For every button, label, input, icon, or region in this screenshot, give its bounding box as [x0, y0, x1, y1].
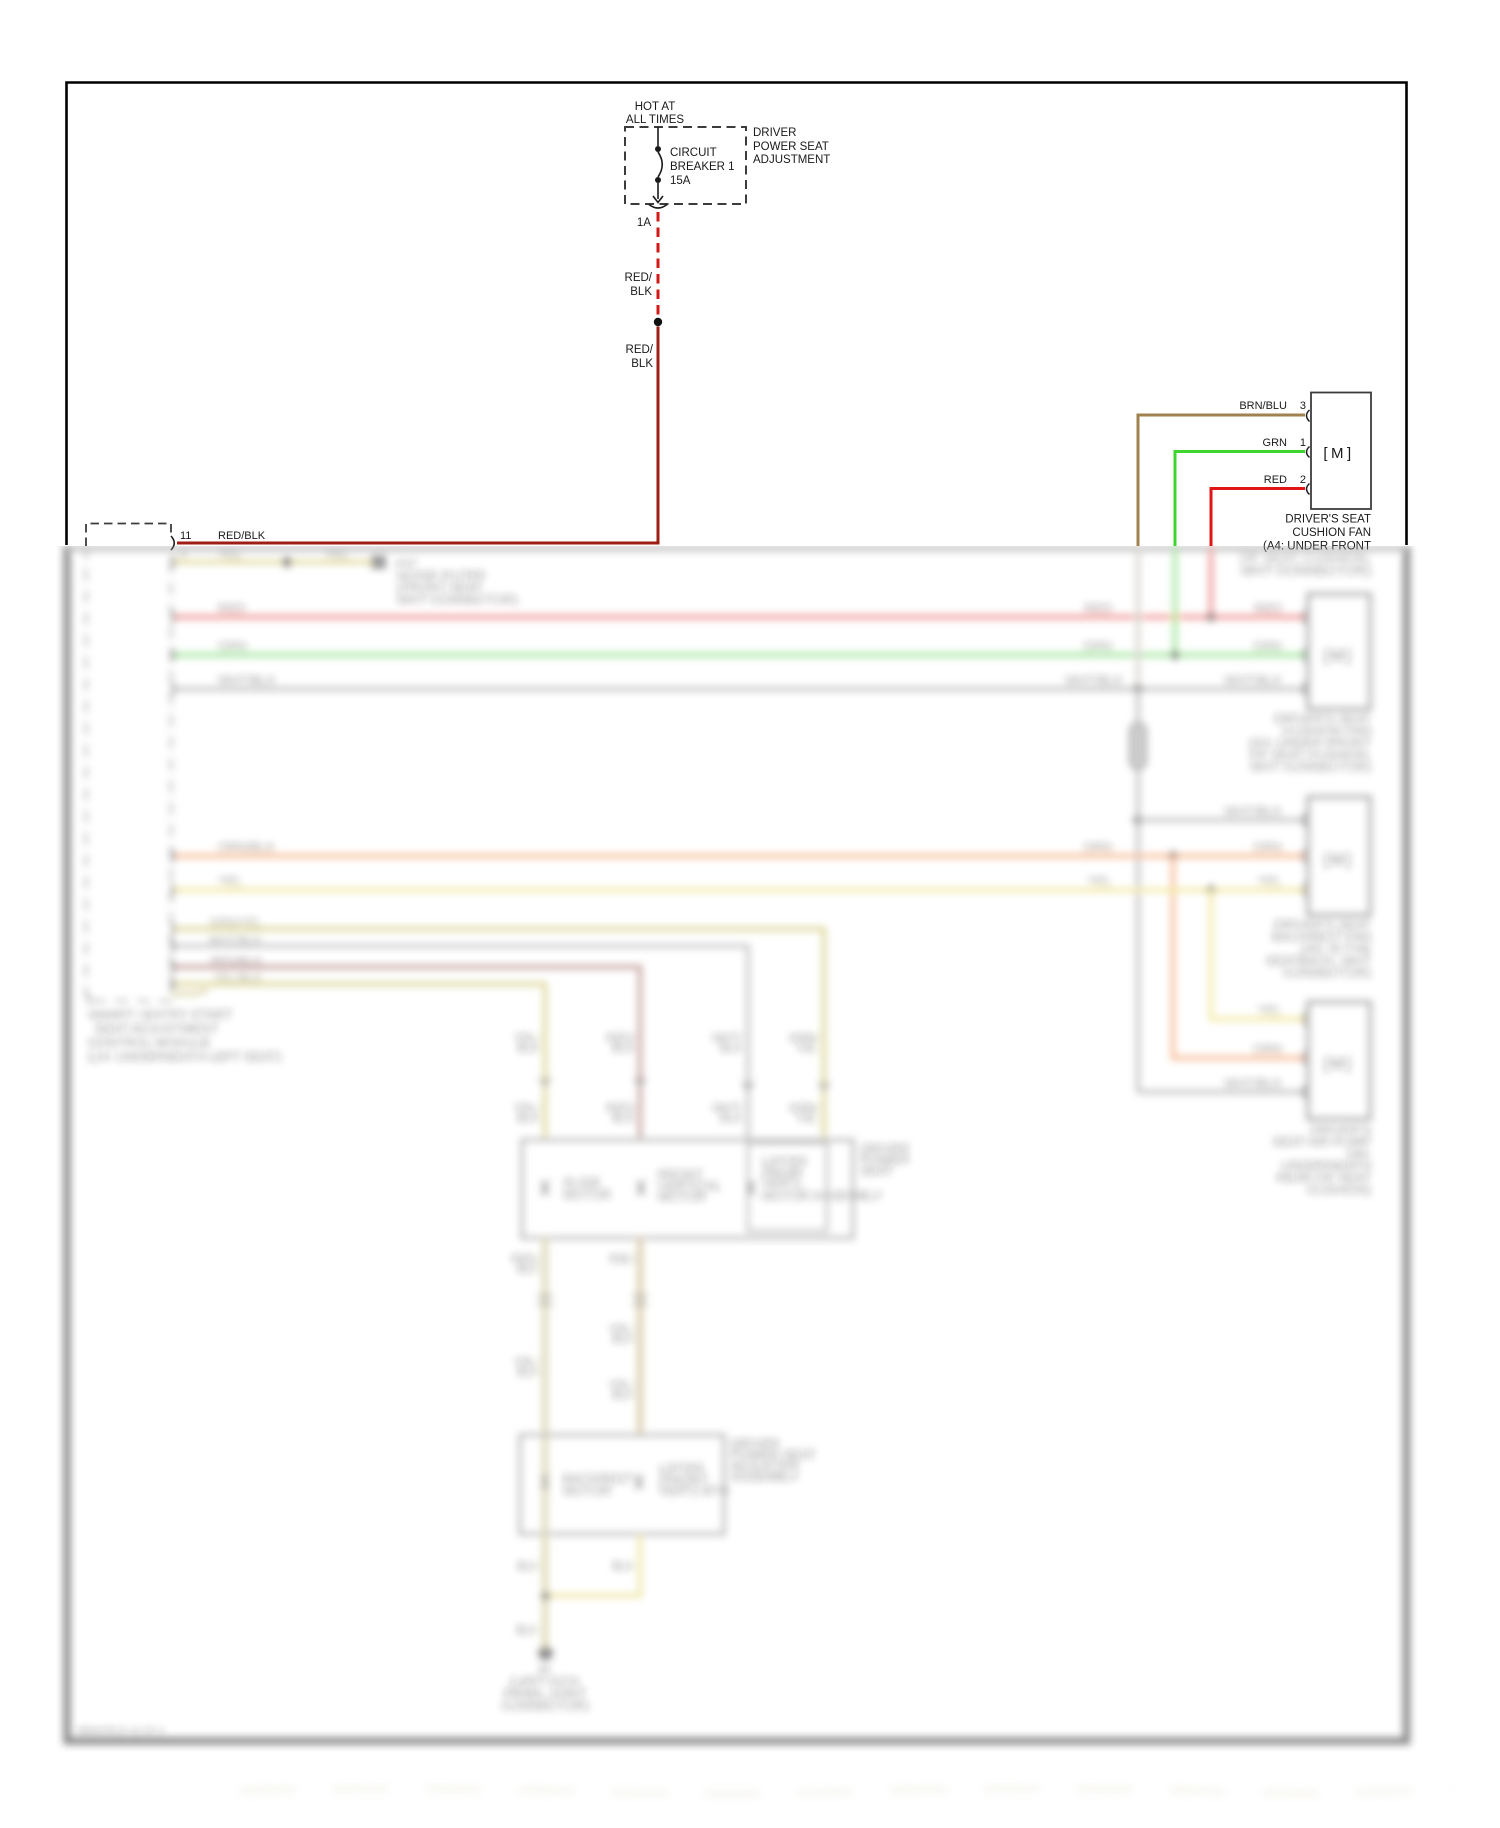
svg-text:ADJUSTMENT: ADJUSTMENT	[753, 154, 830, 166]
svg-text:YEL: YEL	[1257, 1003, 1282, 1018]
svg-text:SEAT: SEAT	[860, 1163, 893, 1178]
svg-text:MBWORLD 12 OF 4: MBWORLD 12 OF 4	[77, 1726, 164, 1737]
svg-text:BLK: BLK	[517, 1559, 540, 1573]
svg-text:[M]: [M]	[1324, 1054, 1352, 1073]
svg-text:BLK: BLK	[517, 1111, 540, 1125]
svg-text:WHT/BLK: WHT/BLK	[1224, 804, 1282, 819]
svg-text:CONNECTOR): CONNECTOR)	[501, 1698, 589, 1713]
svg-text:WHT CONNECTOR): WHT CONNECTOR)	[397, 592, 518, 607]
svg-text:BLK: BLK	[517, 1262, 540, 1276]
svg-text:YEL: YEL	[796, 1041, 819, 1055]
svg-text:DRIVER: DRIVER	[753, 127, 796, 139]
svg-text:CUSHION): CUSHION)	[1307, 1182, 1371, 1197]
svg-text:BLK: BLK	[612, 1111, 635, 1125]
svg-text:GRN: GRN	[1263, 437, 1288, 449]
svg-text:BLK: BLK	[612, 1559, 635, 1573]
svg-text:1: 1	[1300, 437, 1306, 449]
svg-text:SMART / ENTRY START: SMART / ENTRY START	[88, 1007, 233, 1022]
svg-text:CONTROL MODULE: CONTROL MODULE	[88, 1035, 211, 1050]
svg-text:WHT/BLK: WHT/BLK	[1224, 1076, 1282, 1091]
svg-text:RED/BLK: RED/BLK	[218, 530, 266, 542]
svg-text:GRN: GRN	[1083, 639, 1112, 654]
svg-text:BRN/BLU: BRN/BLU	[1239, 400, 1287, 412]
svg-text:BLK: BLK	[612, 1041, 635, 1055]
svg-text:CIRCUIT: CIRCUIT	[670, 147, 717, 159]
svg-text:MOTOR: MOTOR	[563, 1483, 611, 1498]
svg-text:RED/BLK: RED/BLK	[211, 954, 262, 968]
svg-text:[M]: [M]	[1324, 850, 1352, 869]
svg-text:BLK: BLK	[612, 1388, 635, 1402]
svg-text:ORN: ORN	[1253, 1042, 1282, 1057]
svg-text:YEL: YEL	[218, 547, 243, 562]
svg-text:WHT/BLK: WHT/BLK	[209, 933, 262, 947]
svg-text:1A: 1A	[637, 217, 651, 229]
svg-text:RED: RED	[610, 1252, 636, 1266]
svg-text:ORN: ORN	[1253, 840, 1282, 855]
svg-text:MOTOR ASSEMBLY: MOTOR ASSEMBLY	[762, 1188, 882, 1203]
svg-text:ORN/BLK: ORN/BLK	[218, 840, 275, 855]
svg-text:WHT CONNECTOR): WHT CONNECTOR)	[1241, 562, 1371, 578]
svg-text:YEL: YEL	[1087, 874, 1112, 889]
svg-text:[M]: [M]	[1324, 646, 1352, 665]
svg-text:CONNECTOR): CONNECTOR)	[1283, 965, 1371, 980]
svg-text:SEAT ADJUSTMENT: SEAT ADJUSTMENT	[95, 1021, 218, 1036]
svg-text:BREAKER 1: BREAKER 1	[670, 161, 735, 173]
svg-text:RED: RED	[218, 601, 245, 616]
svg-text:RED/: RED/	[626, 344, 654, 356]
svg-text:CUSHION FAN: CUSHION FAN	[1292, 527, 1371, 539]
svg-text:BLK: BLK	[517, 1365, 540, 1379]
svg-text:2: 2	[1300, 474, 1306, 486]
svg-text:WHT/BLK: WHT/BLK	[1065, 673, 1123, 688]
svg-text:MOTOR: MOTOR	[563, 1187, 611, 1202]
svg-text:GRN: GRN	[218, 639, 247, 654]
svg-text:ORN: ORN	[1083, 840, 1112, 855]
svg-text:DRIVER'S SEAT: DRIVER'S SEAT	[1285, 514, 1371, 526]
svg-text:4: 4	[180, 549, 187, 561]
svg-text:YEL/BLK: YEL/BLK	[213, 971, 262, 985]
svg-text:GRN/YEL: GRN/YEL	[209, 916, 262, 930]
svg-text:ASSEMBLY: ASSEMBLY	[730, 1469, 799, 1484]
svg-text:BLK: BLK	[630, 286, 652, 298]
svg-text:YEL: YEL	[796, 1111, 819, 1125]
svg-text:YEL: YEL	[325, 547, 350, 562]
svg-text:(LH: UNDERNEATH LEFT SEAT): (LH: UNDERNEATH LEFT SEAT)	[88, 1049, 282, 1064]
svg-text:RED: RED	[1255, 601, 1282, 616]
svg-text:BLK: BLK	[631, 358, 653, 370]
svg-text:RED: RED	[1264, 474, 1287, 486]
svg-text:VERT) MTR: VERT) MTR	[659, 1483, 730, 1498]
svg-text:RED: RED	[1085, 601, 1112, 616]
svg-text:WHT CONNECTOR): WHT CONNECTOR)	[1250, 759, 1371, 774]
svg-text:15A: 15A	[670, 175, 691, 187]
svg-text:BLK: BLK	[517, 1041, 540, 1055]
svg-text:GRN: GRN	[1253, 639, 1282, 654]
svg-text:BLK: BLK	[720, 1111, 743, 1125]
svg-text:BLK: BLK	[720, 1041, 743, 1055]
svg-text:[M]: [M]	[1323, 445, 1354, 462]
svg-text:11: 11	[180, 530, 191, 542]
svg-text:WHT/BLK: WHT/BLK	[218, 673, 276, 688]
svg-text:BLK: BLK	[516, 1623, 539, 1637]
svg-text:YEL: YEL	[1257, 874, 1282, 889]
svg-text:HOT AT: HOT AT	[635, 101, 675, 113]
svg-text:ALL TIMES: ALL TIMES	[626, 114, 684, 126]
svg-text:MOTOR: MOTOR	[658, 1189, 706, 1204]
svg-text:POWER SEAT: POWER SEAT	[753, 141, 829, 153]
svg-text:YEL: YEL	[218, 874, 243, 889]
svg-text:WHT/BLK: WHT/BLK	[1224, 673, 1282, 688]
svg-text:BLK: BLK	[612, 1332, 635, 1346]
svg-text:3: 3	[1300, 400, 1306, 412]
svg-text:RED/: RED/	[625, 272, 653, 284]
